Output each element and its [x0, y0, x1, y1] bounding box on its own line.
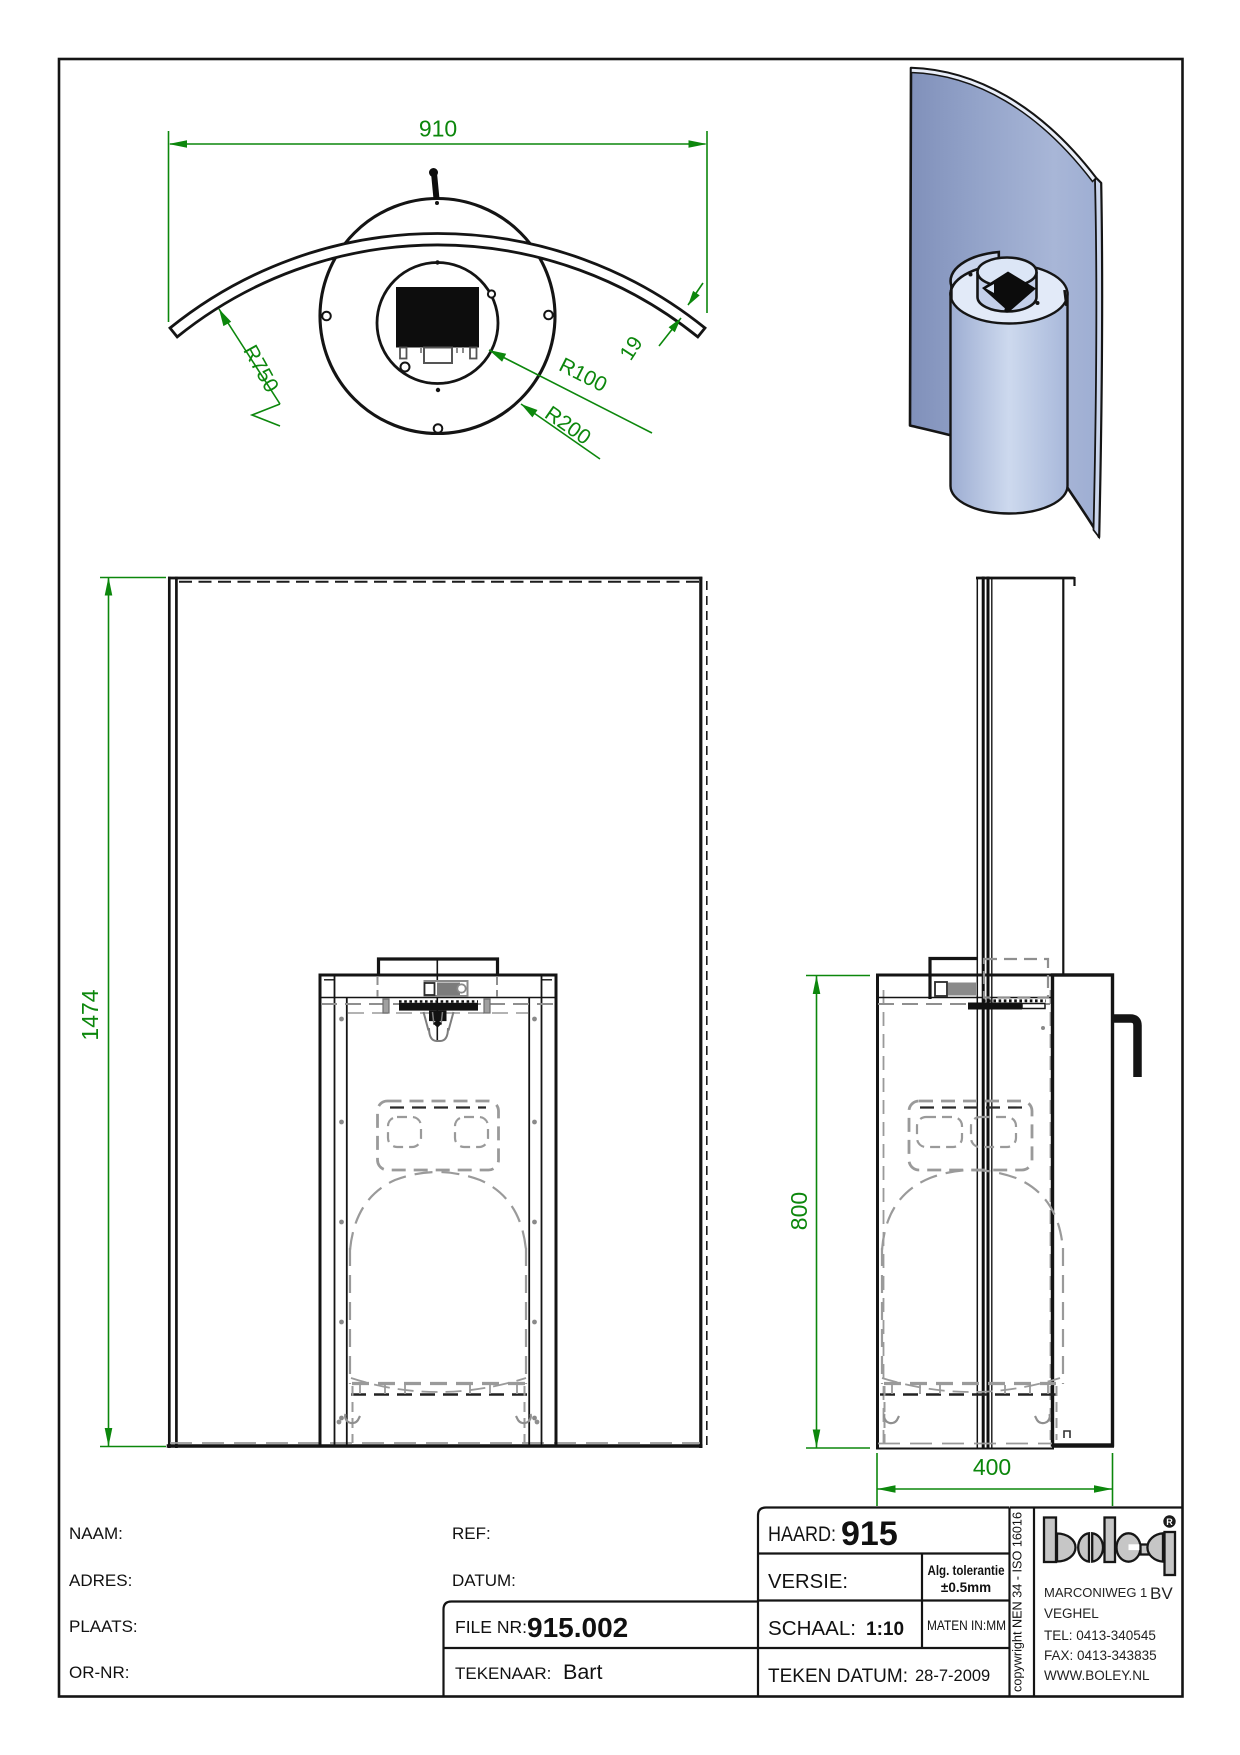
svg-text:915: 915: [841, 1515, 898, 1553]
svg-text:1:10: 1:10: [866, 1619, 904, 1640]
svg-text:MATEN IN:MM: MATEN IN:MM: [927, 1617, 1006, 1633]
svg-text:1474: 1474: [77, 989, 103, 1040]
svg-text:R: R: [1166, 1517, 1173, 1527]
svg-text:Alg. tolerantie: Alg. tolerantie: [928, 1563, 1005, 1578]
svg-text:VERSIE:: VERSIE:: [768, 1570, 848, 1593]
svg-text:HAARD:: HAARD:: [768, 1523, 836, 1546]
svg-text:TEKENAAR:: TEKENAAR:: [455, 1664, 551, 1683]
svg-text:copywright NEN 34 - ISO 16016: copywright NEN 34 - ISO 16016: [1010, 1512, 1025, 1692]
svg-text:WWW.BOLEY.NL: WWW.BOLEY.NL: [1044, 1668, 1150, 1683]
svg-text:SCHAAL:: SCHAAL:: [768, 1617, 856, 1640]
svg-text:REF:: REF:: [452, 1524, 491, 1543]
svg-text:FAX: 0413-343835: FAX: 0413-343835: [1044, 1648, 1157, 1663]
svg-text:ADRES:: ADRES:: [69, 1571, 132, 1590]
svg-text:BV: BV: [1150, 1584, 1173, 1603]
svg-text:PLAATS:: PLAATS:: [69, 1617, 138, 1636]
svg-text:TEL: 0413-340545: TEL: 0413-340545: [1044, 1628, 1156, 1643]
svg-text:910: 910: [419, 116, 457, 142]
svg-text:OR-NR:: OR-NR:: [69, 1663, 129, 1682]
svg-text:FILE NR:: FILE NR:: [455, 1617, 527, 1637]
svg-text:±0.5mm: ±0.5mm: [941, 1580, 991, 1595]
svg-text:NAAM:: NAAM:: [69, 1524, 123, 1543]
svg-text:VEGHEL: VEGHEL: [1044, 1606, 1099, 1621]
svg-text:DATUM:: DATUM:: [452, 1571, 516, 1590]
svg-text:400: 400: [973, 1454, 1011, 1480]
svg-text:800: 800: [786, 1192, 812, 1230]
svg-text:28-7-2009: 28-7-2009: [915, 1667, 990, 1685]
svg-text:TEKEN DATUM:: TEKEN DATUM:: [768, 1665, 908, 1687]
svg-text:Bart: Bart: [563, 1660, 602, 1684]
svg-text:MARCONIWEG 1: MARCONIWEG 1: [1044, 1585, 1147, 1600]
svg-text:915.002: 915.002: [527, 1612, 628, 1643]
